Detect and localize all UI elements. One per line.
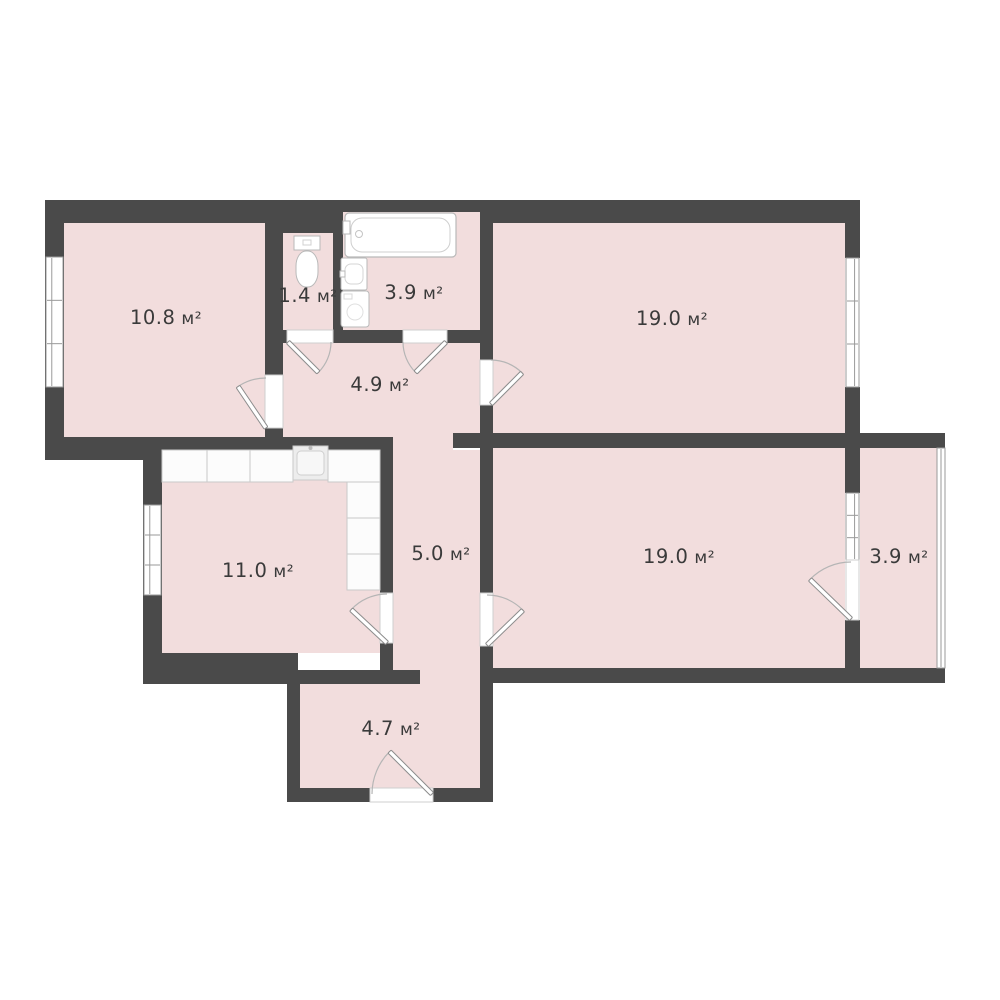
wall-segment bbox=[447, 330, 480, 343]
floor-plan: 10.8м²1.4м²3.9м²4.9м²19.0м²11.0м²5.0м²19… bbox=[0, 0, 1000, 1000]
counter-icon bbox=[250, 450, 293, 482]
floor-plan-svg: 10.8м²1.4м²3.9м²4.9м²19.0м²11.0м²5.0м²19… bbox=[0, 0, 1000, 1000]
wall-segment bbox=[433, 788, 493, 802]
wall-segment bbox=[45, 200, 343, 223]
counter-cell bbox=[328, 450, 380, 482]
balcony-area-label: 3.9м² bbox=[869, 545, 928, 568]
sink-tap bbox=[340, 271, 345, 277]
kitchen-sink-basin bbox=[297, 451, 324, 475]
kitchen-area-label: 11.0м² bbox=[222, 559, 294, 582]
window bbox=[846, 258, 859, 387]
washer-body bbox=[341, 291, 369, 327]
door-wc-opening bbox=[287, 330, 333, 343]
wall-segment bbox=[287, 788, 370, 802]
toilet-bowl bbox=[296, 251, 318, 287]
wall-segment bbox=[143, 653, 298, 684]
wall-segment bbox=[287, 684, 300, 802]
wall-segment bbox=[453, 433, 480, 448]
bathtub-faucet bbox=[343, 221, 350, 234]
counter-cell bbox=[347, 518, 380, 554]
wall-segment bbox=[860, 668, 945, 683]
wall-segment bbox=[845, 387, 860, 448]
door-room-top-left-opening bbox=[265, 375, 283, 428]
counter-cell bbox=[347, 554, 380, 590]
wall-segment bbox=[343, 200, 480, 212]
room-top-left-area-label: 10.8м² bbox=[130, 306, 202, 329]
counter-icon bbox=[347, 554, 380, 590]
wc-area-label: 1.4м² bbox=[278, 284, 337, 307]
room-top-left-floor bbox=[64, 223, 265, 437]
hallway-area-label: 4.9м² bbox=[350, 373, 409, 396]
counter-cell bbox=[347, 482, 380, 518]
counter-icon bbox=[328, 450, 380, 482]
door-bathroom-opening bbox=[403, 330, 447, 343]
wall-segment bbox=[265, 330, 287, 343]
wall-segment bbox=[860, 433, 945, 448]
window-frame bbox=[846, 258, 859, 387]
bathtub-outer bbox=[345, 213, 456, 257]
corridor-area-label: 5.0м² bbox=[411, 542, 470, 565]
sink-icon bbox=[340, 258, 367, 290]
window-frame bbox=[846, 493, 859, 560]
counter-sink-icon bbox=[293, 446, 328, 480]
door-room-top-right-opening bbox=[480, 360, 493, 405]
corridor-floor bbox=[393, 450, 480, 682]
door-entrance-opening bbox=[370, 788, 433, 802]
window bbox=[46, 257, 63, 387]
wall-segment bbox=[480, 405, 493, 448]
wall-segment bbox=[290, 670, 420, 684]
wall-segment bbox=[480, 223, 493, 360]
counter-icon bbox=[162, 450, 207, 482]
hallway-floor bbox=[393, 433, 453, 450]
wall-segment bbox=[493, 433, 860, 448]
bathtub-icon bbox=[343, 213, 456, 257]
window bbox=[846, 493, 859, 560]
wall-segment bbox=[845, 200, 860, 258]
counter-icon bbox=[347, 518, 380, 554]
window bbox=[144, 505, 161, 595]
counter-cell bbox=[162, 450, 207, 482]
room-bottom-right-area-label: 19.0м² bbox=[643, 545, 715, 568]
toilet-icon bbox=[294, 236, 320, 287]
counter-cell bbox=[250, 450, 293, 482]
wall-segment bbox=[480, 668, 860, 683]
wall-segment bbox=[480, 200, 860, 223]
balcony-glazing bbox=[937, 448, 945, 668]
wall-segment bbox=[333, 330, 403, 343]
counter-icon bbox=[207, 450, 250, 482]
counter-cell bbox=[207, 450, 250, 482]
washing-machine-icon bbox=[341, 291, 369, 327]
entrance-hall-area-label: 4.7м² bbox=[361, 717, 420, 740]
wall-segment bbox=[480, 448, 493, 593]
door-balcony-opening bbox=[846, 560, 859, 620]
bathroom-area-label: 3.9м² bbox=[384, 281, 443, 304]
room-top-right-area-label: 19.0м² bbox=[636, 307, 708, 330]
window-frame bbox=[46, 257, 63, 387]
toilet-tank bbox=[294, 236, 320, 250]
counter-icon bbox=[347, 482, 380, 518]
window-frame bbox=[144, 505, 161, 595]
wall-segment bbox=[265, 427, 283, 450]
wall-segment bbox=[845, 448, 860, 493]
corridor-floor bbox=[420, 670, 480, 684]
wall-segment bbox=[480, 670, 493, 802]
kitchen-sink-tap bbox=[309, 446, 313, 450]
wall-segment bbox=[380, 450, 393, 593]
